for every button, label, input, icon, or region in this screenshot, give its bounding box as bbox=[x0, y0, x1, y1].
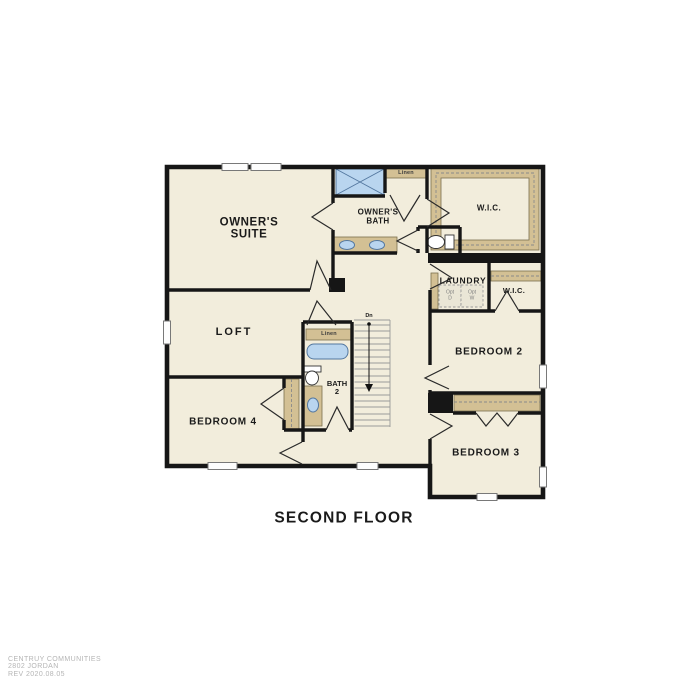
footer-line-revision: REV 2020.08.05 bbox=[8, 671, 101, 678]
page-title: SECOND FLOOR bbox=[274, 511, 413, 528]
bath2-sink bbox=[308, 398, 319, 412]
room-label-bedroom4: BEDROOM 4 bbox=[189, 418, 257, 429]
room-label-line: SUITE bbox=[220, 229, 279, 241]
laundry-shelf bbox=[431, 273, 438, 309]
room-label-bedroom3: BEDROOM 3 bbox=[452, 449, 520, 460]
vanity-sink-left bbox=[340, 241, 355, 250]
room-label-owners-suite: OWNER'S SUITE bbox=[220, 217, 279, 242]
label-stairs-down: Dn bbox=[365, 314, 372, 320]
opt-label-line: D bbox=[446, 296, 454, 302]
room-label-line: OWNER'S bbox=[220, 217, 279, 229]
label-opt-dryer: Opt D bbox=[446, 290, 454, 302]
bedroom3-closet-shelf bbox=[454, 395, 540, 411]
floor-plan-drawing bbox=[0, 0, 687, 687]
room-label-bedroom2-wic: W.I.C. bbox=[503, 287, 525, 295]
room-label-bedroom2: BEDROOM 2 bbox=[455, 348, 523, 359]
room-label-loft: LOFT bbox=[216, 327, 253, 339]
room-label-laundry: LAUNDRY bbox=[440, 276, 487, 285]
room-label-line: 2 bbox=[327, 388, 347, 396]
opt-label-line: W bbox=[468, 296, 476, 302]
footer-attribution: CENTRUY COMMUNITIES 2802 JORDAN REV 2020… bbox=[8, 656, 101, 678]
owners-toilet-bowl bbox=[428, 236, 445, 249]
room-label-owners-wic: W.I.C. bbox=[477, 205, 501, 214]
room-label-owners-bath: OWNER'S BATH bbox=[358, 208, 399, 225]
label-linen-hall: Linen bbox=[321, 332, 337, 338]
vanity-sink-right bbox=[370, 241, 385, 250]
room-label-bath2: BATH 2 bbox=[327, 380, 347, 396]
footer-line-builder: CENTRUY COMMUNITIES bbox=[8, 656, 101, 663]
label-opt-washer: Opt W bbox=[468, 290, 476, 302]
footer-line-plan: 2802 JORDAN bbox=[8, 663, 101, 670]
label-linen-owners-bath: Linen bbox=[398, 171, 414, 177]
bath2-toilet-bowl bbox=[306, 371, 319, 385]
floor-plan-page: OWNER'S SUITE OWNER'S BATH W.I.C. LAUNDR… bbox=[0, 0, 687, 687]
owners-toilet-tank bbox=[445, 235, 454, 249]
bathtub-fixture bbox=[307, 344, 348, 359]
room-label-line: BATH bbox=[358, 217, 399, 226]
